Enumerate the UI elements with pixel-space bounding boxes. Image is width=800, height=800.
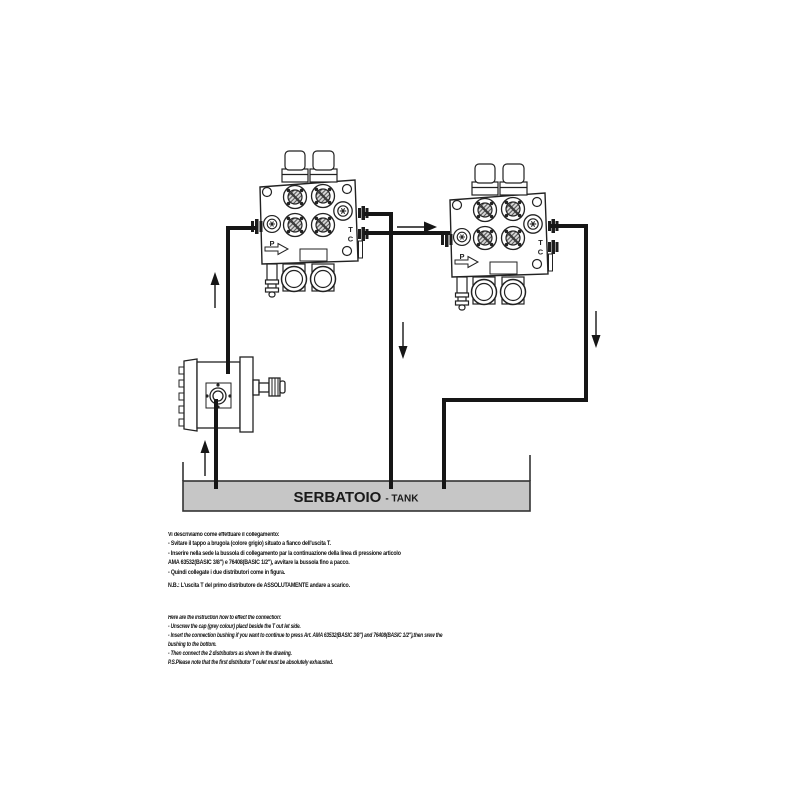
flow-arrow-right-valve1-to-valve2: [397, 222, 437, 233]
hydraulic-diagram: T C P: [0, 0, 800, 800]
instruction-line: Vi descriviamo come effettuare il colleg…: [168, 531, 401, 540]
instruction-line: - Quindi collegate i due distributori co…: [168, 569, 401, 578]
pipe-valve1-t-to-tank: [364, 214, 391, 489]
pipe-pump-to-valve1: [228, 228, 256, 374]
instruction-line: AMA 63532(BASIC 3/8") e 76408(BASIC 1/2"…: [168, 559, 401, 568]
instruction-line: - Then connect the 2 distributors as sho…: [168, 650, 442, 659]
instruction-note-line: N.B.: L'uscita T del primo distributore …: [168, 582, 401, 591]
flow-arrow-down-valve2-return: [592, 311, 601, 348]
distributor-valve-2: [441, 164, 559, 310]
pump-mounting-flange: [179, 359, 197, 431]
flow-arrow-up-tank-to-pump: [201, 440, 210, 476]
pump-end-cover: [240, 357, 253, 432]
instruction-line: - Unscrew the cap (grey colour) placd be…: [168, 623, 442, 632]
instruction-line: - Inserire nella sede la bussola di coll…: [168, 550, 401, 559]
instruction-line: - Svitare il tappo a brugola (colore gri…: [168, 540, 401, 549]
instructions-english: Here are the instruction how to effect t…: [168, 614, 442, 668]
tank-label-sub: - TANK: [385, 494, 419, 505]
pump-front-port: [205, 383, 231, 409]
flow-arrow-up-pump-to-valve1: [211, 272, 220, 308]
instruction-line: - Insert the connection bushing if you w…: [168, 632, 442, 641]
page: T C P: [0, 0, 800, 800]
instruction-line: Here are the instruction how to effect t…: [168, 614, 442, 623]
distributor-valve-1: [251, 151, 369, 297]
instructions-italian: Vi descriviamo come effettuare il colleg…: [168, 531, 401, 592]
instruction-line: bushing to the bottom.: [168, 641, 442, 650]
tank: SERBATOIO- TANK: [183, 455, 530, 511]
instruction-note-line: P.S.Please note that the first distribut…: [168, 659, 442, 668]
tank-label-main: SERBATOIO: [294, 489, 382, 506]
flow-arrow-down-valve1-return: [399, 322, 408, 359]
pump-shaft: [253, 378, 285, 396]
gear-pump: [179, 357, 285, 432]
